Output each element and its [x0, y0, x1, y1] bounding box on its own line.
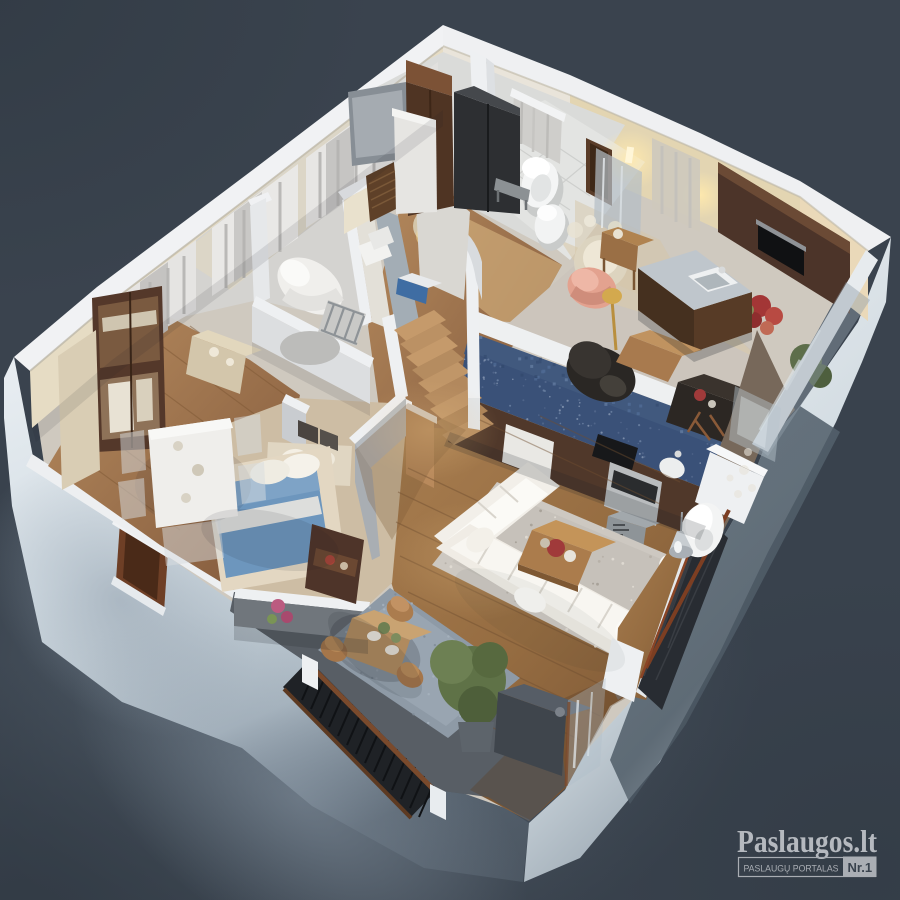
svg-text:Paslaugos.lt: Paslaugos.lt — [737, 823, 877, 859]
svg-text:Nr.1: Nr.1 — [848, 860, 873, 875]
svg-text:PASLAUGŲ PORTALAS: PASLAUGŲ PORTALAS — [744, 864, 839, 875]
